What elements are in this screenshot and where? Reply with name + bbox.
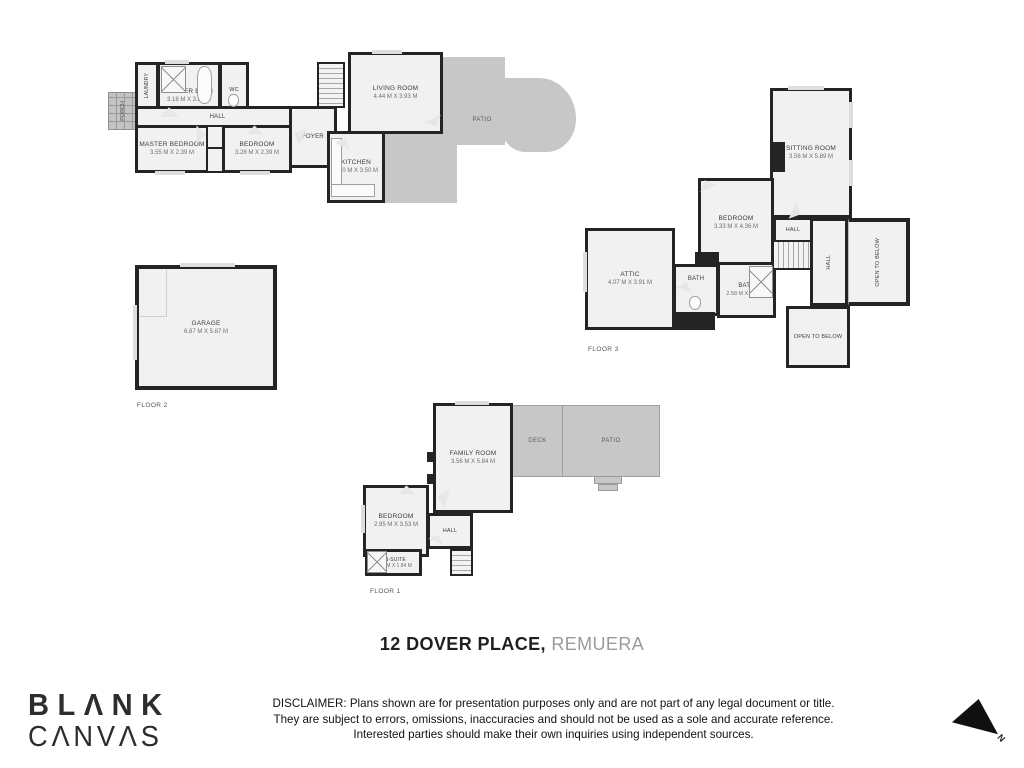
floor2-hall-name: HALL [210, 113, 226, 121]
title-suburb: REMUERA [551, 634, 644, 654]
floor2-master-bedroom-name: MASTER BEDROOM [139, 141, 204, 149]
floor1-label: FLOOR 1 [370, 588, 401, 595]
window-segment [180, 263, 235, 267]
window-segment [155, 171, 185, 175]
floor2-stairs [317, 62, 345, 108]
window-segment [455, 401, 489, 405]
kitchen-counter-bottom [331, 184, 375, 197]
floor1-bedroom: BEDROOM 2.95 M X 3.53 M [363, 485, 429, 557]
fireplace-block [427, 452, 435, 462]
window-segment [133, 305, 137, 360]
floor3-open-to-below-bottom: OPEN TO BELOW [786, 306, 850, 368]
north-arrow-triangle [952, 699, 998, 739]
chimney-block [770, 142, 785, 172]
floor1-patio: PATIO [562, 405, 660, 477]
floor3-label: FLOOR 3 [588, 346, 619, 353]
floor2-porch-label: PORCH [120, 101, 126, 121]
floor3-attic: ATTIC 4.07 M X 3.91 M [585, 228, 675, 330]
floor1-bedroom-name: BEDROOM [379, 513, 414, 521]
floor2-wc-name: WC [229, 86, 239, 94]
floor3-hall-top-name: HALL [786, 226, 801, 234]
page-title: 12 DOVER PLACE, REMUERA [0, 634, 1024, 655]
title-address: 12 DOVER PLACE, [380, 634, 546, 654]
floor3-sitting-room-name: SITTING ROOM [786, 145, 836, 153]
floor2-patio-lower [385, 133, 457, 203]
floor1-patio-label: PATIO [601, 438, 620, 444]
window-segment [361, 505, 365, 533]
floor3-wall-chunk [673, 312, 715, 330]
floor1-deck: DECK [511, 405, 564, 477]
floor2-garage-dims: 6.87 M X 5.87 M [184, 328, 228, 336]
floor3-attic-dims: 4.07 M X 3.91 M [608, 279, 652, 287]
window-segment [372, 50, 402, 54]
floor1-deck-label: DECK [528, 438, 546, 444]
floor1-bedroom-dims: 2.95 M X 3.53 M [374, 521, 418, 529]
garage-inner-corner [139, 269, 167, 317]
floor2-garage-name: GARAGE [191, 320, 220, 328]
disclaimer-line1: DISCLAIMER: Plans shown are for presenta… [220, 696, 887, 712]
window-segment [849, 102, 853, 128]
floor3-stairs [772, 240, 812, 270]
floor2-living-room-name: LIVING ROOM [373, 85, 419, 93]
floor2-closet-divider [208, 147, 223, 149]
bathtub-icon [197, 66, 212, 104]
floor3-wall-chunk [695, 252, 719, 266]
floor2-laundry: LAUNDRY [135, 62, 159, 109]
floor3-bedroom-dims: 3.33 M X 4.36 M [714, 223, 758, 231]
floor1-family-room-dims: 3.56 M X 5.84 M [451, 458, 495, 466]
floor3-hall-side-name: HALL [825, 255, 833, 270]
shower-icon [161, 66, 186, 93]
window-segment [165, 60, 189, 64]
north-arrow-icon: N [950, 697, 1004, 745]
floor3-bedroom-name: BEDROOM [719, 215, 754, 223]
floor3-bath1-name: BATH [688, 275, 704, 283]
floor3-otb-bottom-name: OPEN TO BELOW [794, 333, 843, 341]
floor2-foyer-name: FOYER [302, 133, 324, 141]
toilet-icon [689, 296, 701, 310]
floor3-hall-top: HALL [774, 218, 812, 242]
window-segment [849, 160, 853, 186]
floor3-hall-side: HALL [810, 218, 848, 306]
floor1-hall-name: HALL [443, 527, 458, 535]
floor3-sitting-room-dims: 3.56 M X 5.89 M [789, 153, 833, 161]
patio-steps [594, 476, 622, 484]
floor1-hall: HALL [427, 513, 473, 549]
floorplan-sheet: PATIO PORCH LAUNDRY MASTER BATH 3.18 M X… [0, 0, 1024, 768]
floor2-label: FLOOR 2 [137, 402, 168, 409]
disclaimer-text: DISCLAIMER: Plans shown are for presenta… [220, 696, 887, 743]
floor2-porch: PORCH [108, 92, 138, 130]
floor2-patio-blob [500, 78, 576, 152]
shower-icon [367, 551, 387, 573]
floor1-stairs [450, 549, 473, 576]
north-label: N [995, 732, 1007, 744]
disclaimer-line3: Interested parties should make their own… [220, 727, 887, 743]
floor2-bedroom-dims: 3.28 M X 2.39 M [235, 149, 279, 157]
window-segment [788, 86, 824, 90]
disclaimer-line2: They are subject to errors, omissions, i… [220, 712, 887, 728]
floor2-patio-area [443, 57, 505, 145]
window-segment [583, 252, 587, 292]
floor2-master-bedroom-dims: 3.55 M X 2.39 M [150, 149, 194, 157]
fireplace-block [427, 474, 435, 484]
toilet-icon [228, 94, 239, 107]
logo-line2: CΛNVΛS [28, 721, 178, 753]
floor3-otb-right-name: OPEN TO BELOW [874, 238, 882, 287]
floor2-living-room-dims: 4.44 M X 3.93 M [373, 93, 417, 101]
patio-steps [598, 484, 618, 491]
blank-canvas-logo: BLΛNK CΛNVΛS [28, 688, 178, 753]
logo-line1: BLΛNK [28, 688, 178, 721]
floor2-laundry-label: LAUNDRY [143, 73, 151, 98]
floor3-open-to-below-right: OPEN TO BELOW [848, 218, 910, 306]
window-segment [240, 171, 270, 175]
shower-icon [749, 266, 773, 298]
floor3-attic-name: ATTIC [620, 271, 639, 279]
floor1-family-room-name: FAMILY ROOM [450, 450, 497, 458]
floor2-patio-label: PATIO [452, 117, 512, 123]
floor2-kitchen-name: KITCHEN [341, 159, 371, 167]
floor2-bedroom-name: BEDROOM [240, 141, 275, 149]
